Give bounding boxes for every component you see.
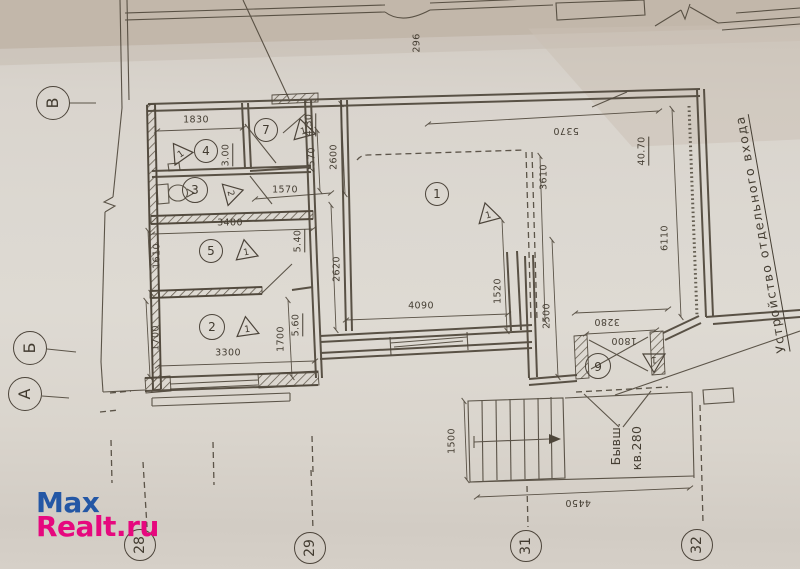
watermark-line-realt: Realt.ru <box>36 515 159 539</box>
svg-text:1: 1 <box>244 325 251 336</box>
triangle-marker: 1 <box>231 236 260 266</box>
room-number-circle: 1 <box>425 182 449 206</box>
floor-plan-photo: 1830257026003.004.301570340016105.405.60… <box>0 0 800 569</box>
dimension-label: 3400 <box>217 218 243 228</box>
room-number-circle: 3 <box>182 177 208 203</box>
dimension-label: 1700 <box>276 326 286 352</box>
axis-circle: 29 <box>294 532 326 564</box>
dimension-label: 2600 <box>329 144 339 170</box>
watermark: Max Realt.ru <box>36 491 159 539</box>
dimension-label: 2500 <box>542 303 552 329</box>
dimension-label: 1500 <box>447 428 457 454</box>
room-number-circle: 5 <box>199 239 223 263</box>
annotation-label: кв.280 <box>631 426 644 471</box>
dimension-label: 2620 <box>332 256 342 282</box>
axis-circle: 32 <box>681 529 713 561</box>
triangle-marker: 1 <box>642 348 667 374</box>
dimension-label: 4450 <box>565 497 591 507</box>
svg-text:1: 1 <box>651 354 657 364</box>
dimension-label: 5.40 <box>293 230 305 253</box>
svg-text:1: 1 <box>484 210 492 221</box>
dimension-label: 1610 <box>152 243 162 269</box>
dimension-label: 5370 <box>553 125 579 135</box>
dimension-label: 1800 <box>611 335 637 345</box>
dimension-label: 3300 <box>215 348 241 358</box>
dimension-label: 1520 <box>493 278 503 304</box>
plan-linework <box>0 0 800 569</box>
room-number-circle: 4 <box>194 139 218 163</box>
axis-circle: А <box>8 377 42 411</box>
dimension-label: 1570 <box>272 185 298 195</box>
axis-circle: В <box>36 86 70 120</box>
svg-text:2: 2 <box>224 189 235 197</box>
dimension-label: 40.70 <box>637 136 649 165</box>
dimension-label: 296 <box>412 33 422 52</box>
dimension-label: 1830 <box>183 115 209 125</box>
room-number-circle: 6 <box>585 353 611 379</box>
axis-circle: Б <box>13 331 47 365</box>
dimension-label: 6110 <box>660 225 670 251</box>
dimension-label: 3.00 <box>221 144 233 167</box>
dimension-label: 3610 <box>539 164 549 190</box>
dimension-label: 3280 <box>594 316 620 326</box>
annotation-label: Бывш. <box>610 423 623 466</box>
dimension-label: 2570 <box>307 147 317 173</box>
svg-text:1: 1 <box>243 248 250 259</box>
dotted-new-wall <box>689 106 697 316</box>
room-number-circle: 7 <box>254 118 278 142</box>
dimension-label: 4090 <box>408 301 434 311</box>
stair-arrow-head <box>549 434 561 444</box>
dimension-label: 1700 <box>151 325 161 351</box>
triangle-marker: 1 <box>233 313 261 342</box>
dimension-label: 5.60 <box>291 314 303 337</box>
svg-text:1: 1 <box>299 126 307 137</box>
axis-circle: 31 <box>510 530 542 562</box>
room-number-circle: 2 <box>199 314 225 340</box>
